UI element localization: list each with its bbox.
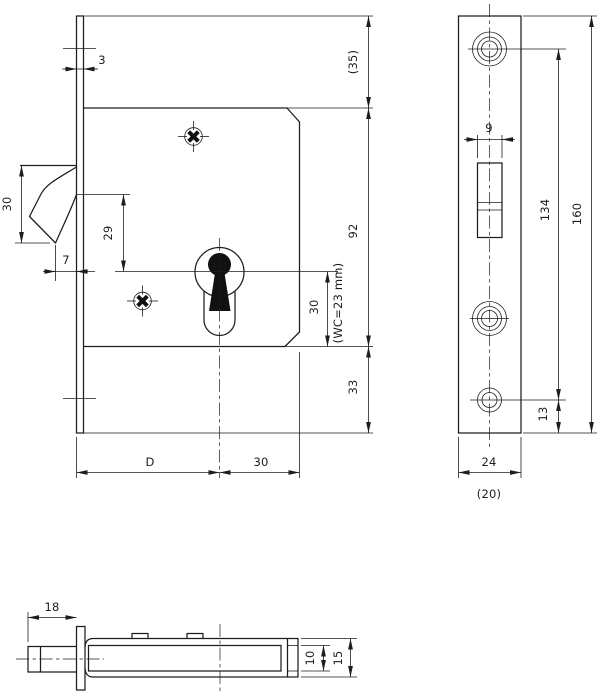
hook-bolt <box>21 166 77 244</box>
technical-drawing-sheet: 3 30 29 7 (35) 92 <box>0 0 600 700</box>
dim-case-height-label: 92 <box>346 223 360 238</box>
faceplate-edge-strip <box>63 16 96 433</box>
dim-faceplate-thickness-label: 3 <box>98 53 106 67</box>
dim-faceplate-width-label: 24 <box>481 455 496 469</box>
lower-screw-hole <box>470 388 566 412</box>
dim-hook-to-key-center: 29 <box>77 195 130 272</box>
dim-lower-hole-to-end-label: 13 <box>536 406 550 421</box>
faceplate-view: 9 134 13 160 24 (20) <box>459 4 598 501</box>
faceplate-bar <box>77 627 86 691</box>
dim-key-center-to-case-edge: 30 <box>220 455 300 473</box>
dim-wc-note-label: (WC=23 mm) <box>331 263 345 344</box>
hook-lock-drawing: 3 30 29 7 (35) 92 <box>0 0 600 700</box>
dim-hook-bolt-height: 30 <box>0 166 50 244</box>
rivet-tab <box>187 634 203 639</box>
screw-icon <box>127 286 158 317</box>
dim-case-thickness-label: 10 <box>303 650 317 665</box>
dim-top-to-case: (35) <box>346 16 369 108</box>
dim-screw-hole-spacing-label: 134 <box>538 199 552 222</box>
dim-case-thickness: 10 <box>301 646 330 672</box>
dim-key-center-to-case-bottom: 30 (WC=23 mm) <box>307 263 345 347</box>
dim-case-bottom-to-plate-end: 33 <box>346 347 369 434</box>
dim-hook-protrusion: 7 <box>43 245 95 281</box>
rivet-tab <box>132 634 148 639</box>
middle-screw-hole <box>470 302 509 336</box>
dim-bolt-projection: 18 <box>28 600 77 642</box>
dim-faceplate-height: 160 <box>523 16 597 433</box>
dim-hook-protrusion-label: 7 <box>62 253 70 267</box>
dim-case-width-label: (20) <box>477 487 501 501</box>
dim-bolt-projection-label: 18 <box>44 600 59 614</box>
dim-backset-label: D <box>145 455 154 469</box>
dim-hook-to-key-center-label: 29 <box>101 225 115 240</box>
dim-key-center-to-case-edge-label: 30 <box>253 455 268 469</box>
dim-faceplate-height-label: 160 <box>570 203 584 226</box>
dim-top-to-case-label: (35) <box>346 50 360 74</box>
top-screw-hole <box>468 32 566 66</box>
dim-case-bottom-to-plate-end-label: 33 <box>346 379 360 394</box>
dim-bolt-slot-width-label: 9 <box>485 121 493 135</box>
case-body <box>85 634 298 678</box>
dim-case-height: 92 <box>346 108 369 347</box>
dim-overall-thickness-label: 15 <box>331 650 345 665</box>
bottom-view: 18 10 15 <box>16 600 357 692</box>
dim-hook-bolt-height-label: 30 <box>0 196 14 211</box>
dim-screw-hole-spacing: 134 <box>538 49 559 400</box>
dim-faceplate-width: 24 <box>459 437 522 478</box>
screw-icon <box>178 121 209 152</box>
dim-lower-hole-to-end: 13 <box>536 400 559 433</box>
lock-case-outline <box>84 108 300 347</box>
front-view: 3 30 29 7 (35) 92 <box>0 16 373 478</box>
dim-key-center-to-case-bottom-label: 30 <box>307 299 321 314</box>
